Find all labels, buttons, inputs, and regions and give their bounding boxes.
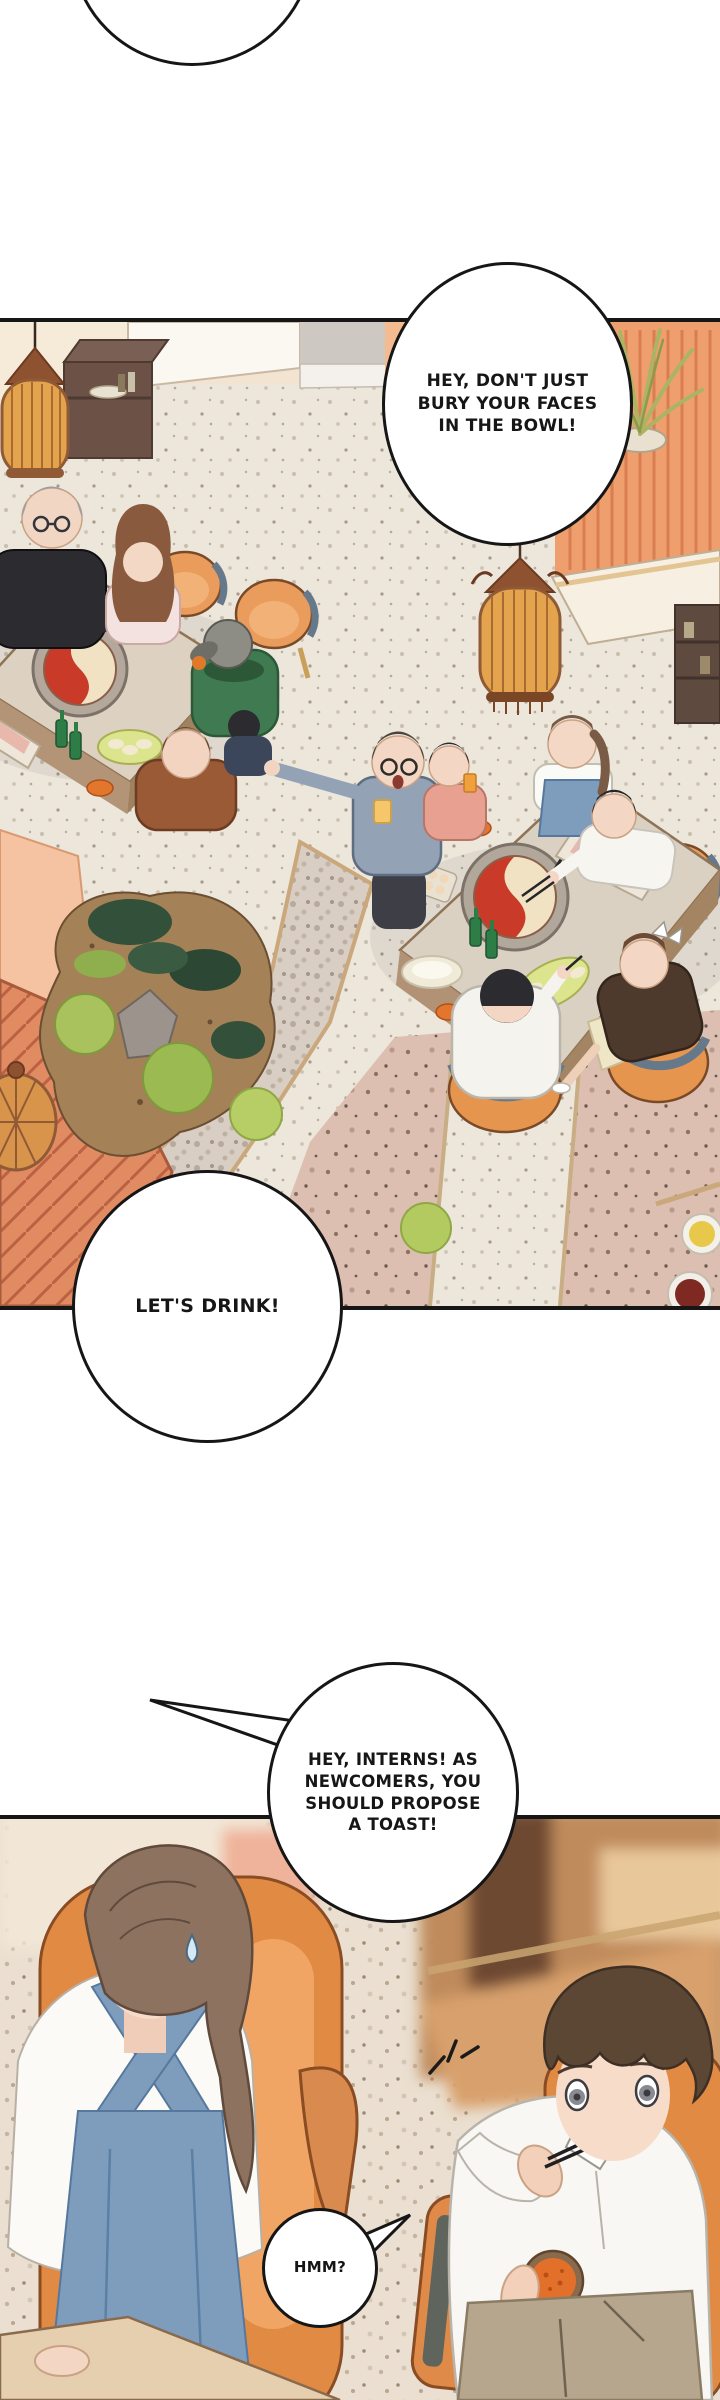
moss-ball (230, 1088, 282, 1140)
woman-hand (35, 2346, 89, 2376)
juice-glass (464, 774, 476, 792)
wood-service-cart (64, 340, 168, 458)
speech-bubble-boss-shout: HEY, DON'T JUST BURY YOUR FACES IN THE B… (382, 262, 633, 546)
boss-shout-text: HEY, DON'T JUST BURY YOUR FACES IN THE B… (418, 370, 598, 437)
hmm-text: HMM? (294, 2258, 346, 2278)
speech-bubble-partial-top (70, 0, 314, 66)
lets-drink-text: LET'S DRINK! (135, 1294, 280, 1319)
wood-shelf-right (675, 605, 720, 723)
dumpling-plate (98, 730, 162, 764)
khaki-pants (458, 2291, 702, 2400)
beer-glass (374, 800, 391, 823)
rock-garden (40, 892, 282, 1156)
moss-ball (143, 1043, 213, 1113)
toast-text: HEY, INTERNS! AS NEWCOMERS, YOU SHOULD P… (305, 1749, 482, 1836)
comic-page: HEY, DON'T JUST BURY YOUR FACES IN THE B… (0, 0, 720, 2400)
sauce-dish (87, 780, 113, 796)
speech-bubble-lets-drink: LET'S DRINK! (72, 1170, 343, 1443)
speech-bubble-hmm: HMM? (262, 2208, 378, 2328)
moss-ball (55, 994, 115, 1054)
moss-ball (401, 1203, 451, 1253)
speech-bubble-toast: HEY, INTERNS! AS NEWCOMERS, YOU SHOULD P… (267, 1662, 519, 1923)
